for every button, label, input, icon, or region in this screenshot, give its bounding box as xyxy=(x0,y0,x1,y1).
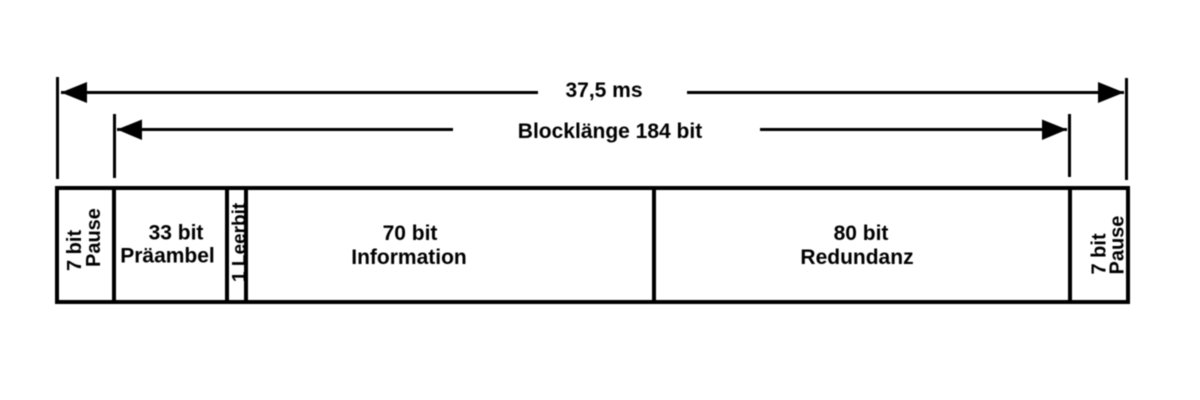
svg-text:Redundanz: Redundanz xyxy=(800,246,913,269)
svg-text:Information: Information xyxy=(351,246,467,269)
svg-text:Pause: Pause xyxy=(1107,216,1129,275)
svg-text:Präambel: Präambel xyxy=(120,245,215,268)
svg-text:33 bit: 33 bit xyxy=(149,222,204,245)
svg-text:1 Leerbit: 1 Leerbit xyxy=(230,202,251,282)
svg-text:80 bit: 80 bit xyxy=(834,222,889,245)
svg-text:Blocklänge 184 bit: Blocklänge 184 bit xyxy=(518,120,702,143)
svg-text:70 bit: 70 bit xyxy=(383,222,438,245)
svg-text:Pause: Pause xyxy=(83,208,105,267)
svg-text:37,5 ms: 37,5 ms xyxy=(565,79,642,102)
